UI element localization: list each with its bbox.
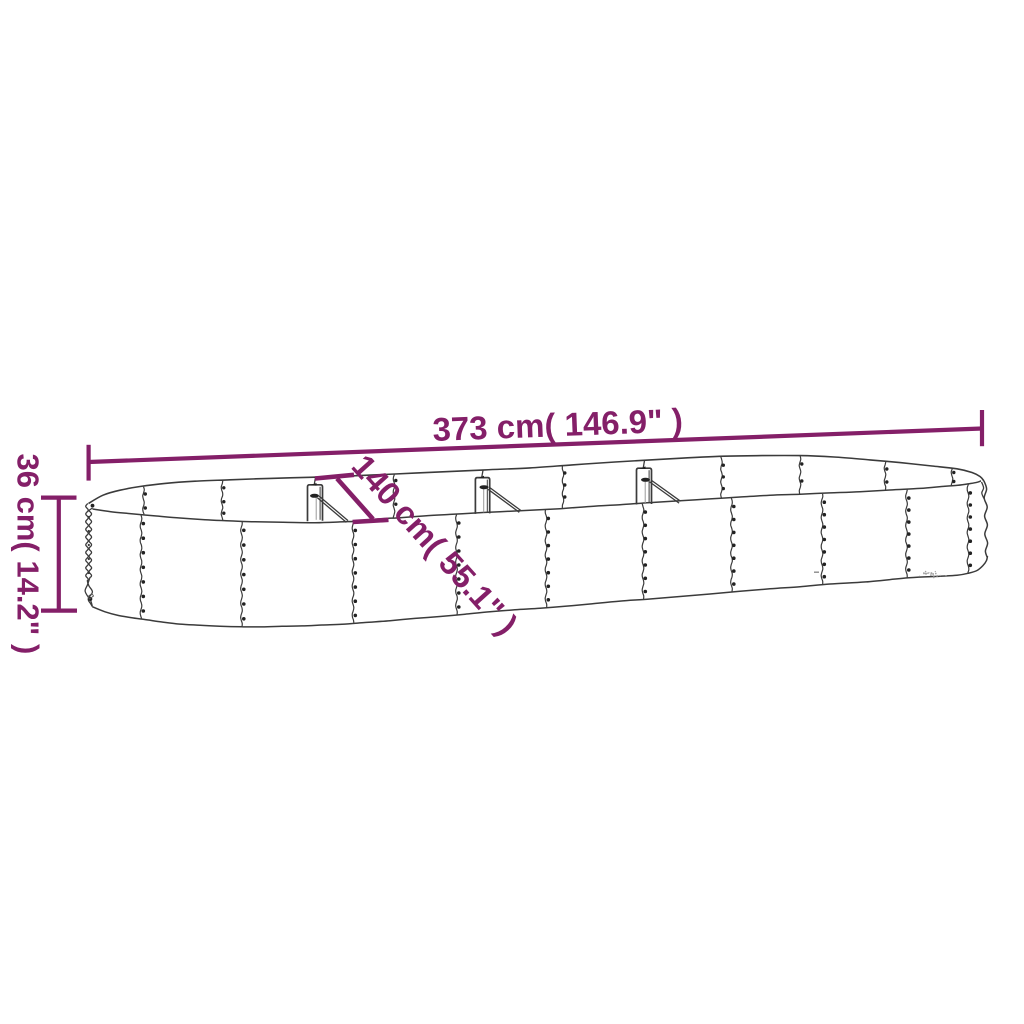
svg-text:36 cm( 14.2" ): 36 cm( 14.2" ): [11, 454, 46, 655]
